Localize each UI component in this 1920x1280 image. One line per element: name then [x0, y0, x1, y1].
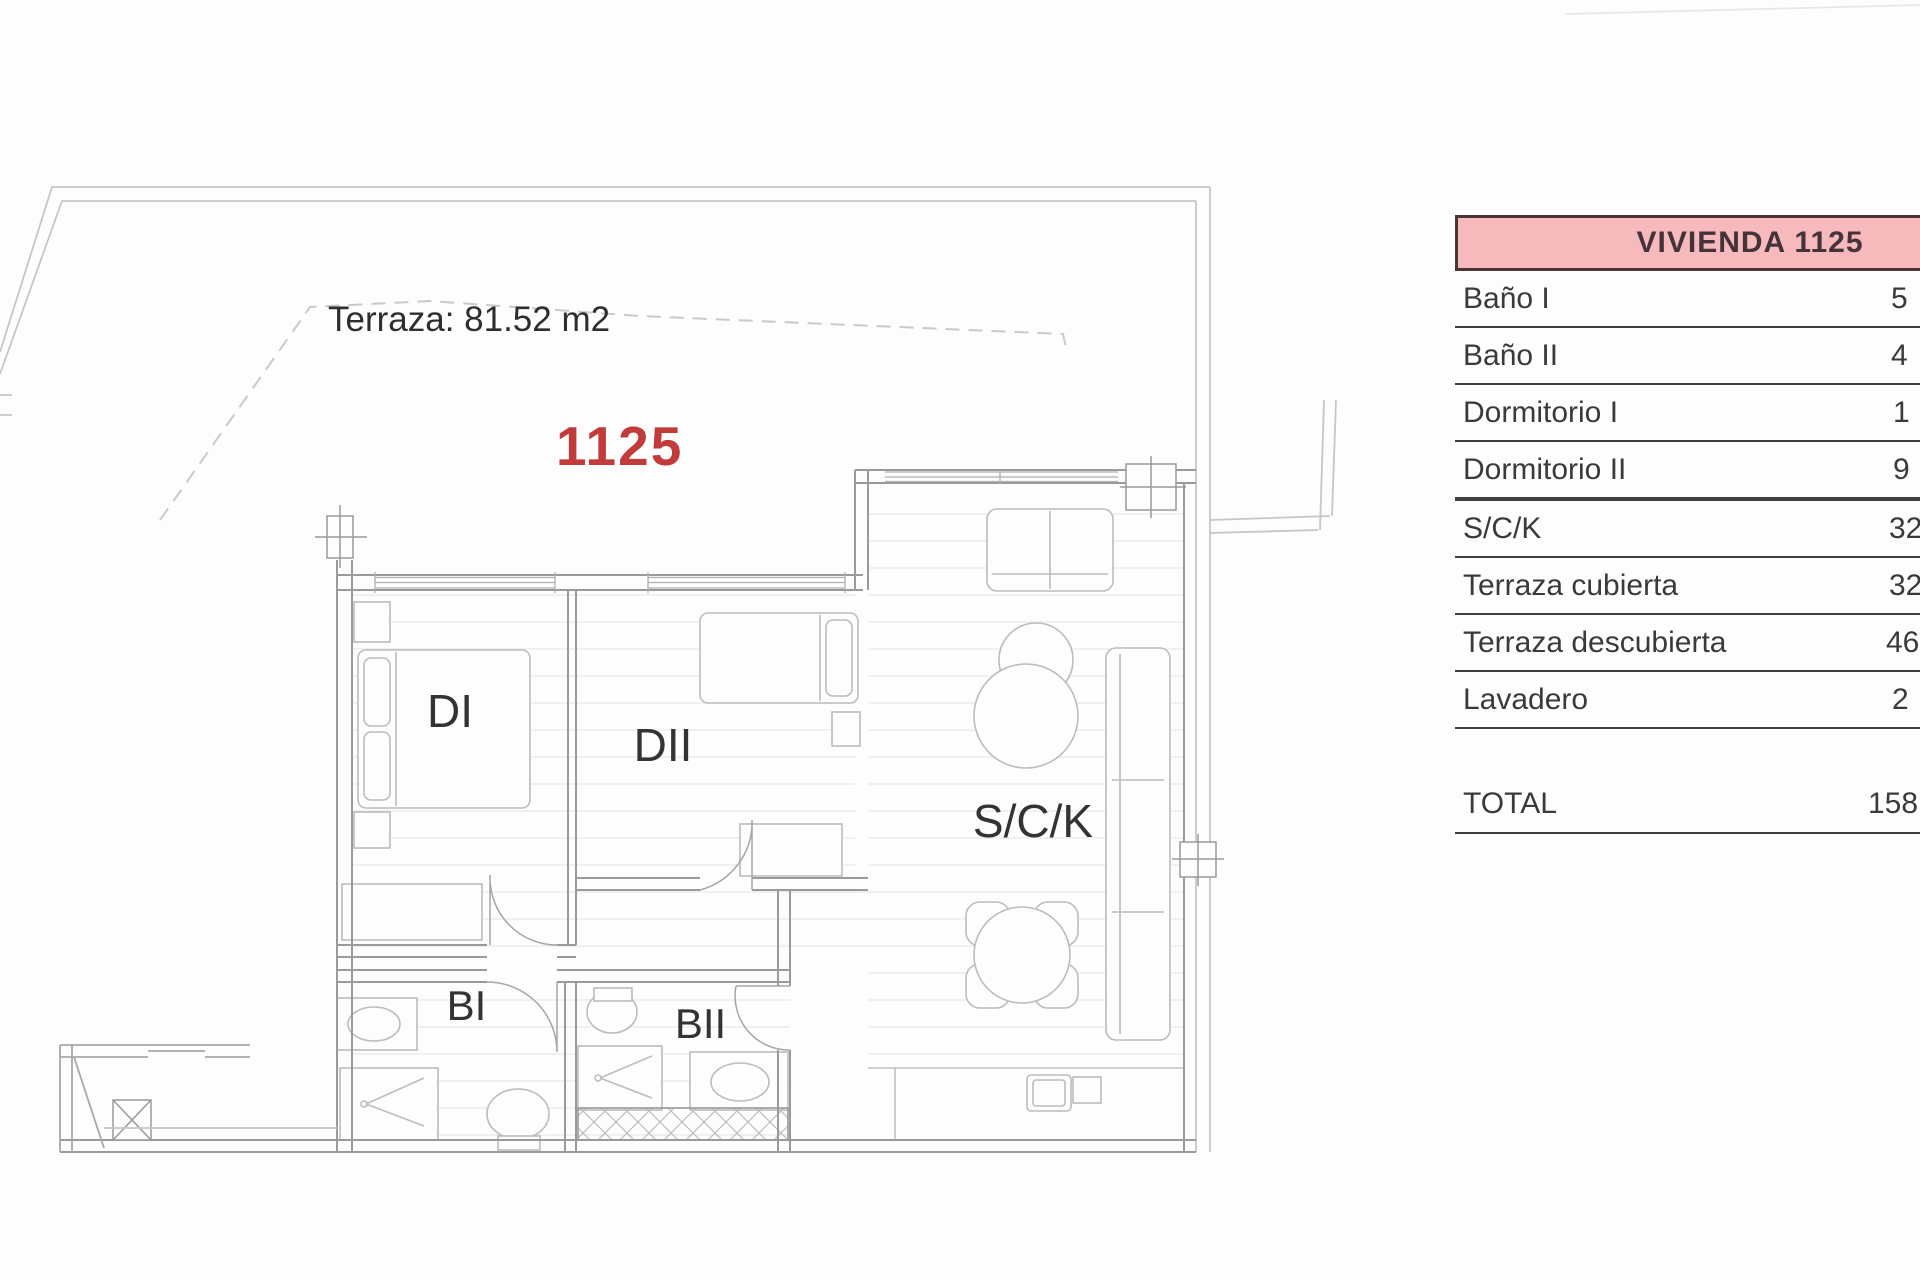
table-row: Dormitorio I 1 [1455, 385, 1920, 442]
row-value: 32 [1889, 501, 1920, 556]
room-label-bano2: BII [648, 1000, 753, 1048]
row-value: 1 [1893, 385, 1910, 440]
table-header: VIVIENDA 1125 [1455, 215, 1920, 271]
row-value: 46 [1886, 615, 1919, 670]
area-table: VIVIENDA 1125 Baño I 5 Baño II 4 Dormito… [1455, 215, 1920, 834]
lavadero-hatch [578, 1108, 788, 1140]
row-label: S/C/K [1463, 501, 1541, 556]
table-row: S/C/K 32 [1455, 501, 1920, 558]
row-label: Dormitorio I [1463, 385, 1618, 440]
room-label-bano1: BI [424, 982, 509, 1030]
hob [1073, 1077, 1101, 1103]
room-label-dormitorio1: DI [405, 684, 495, 738]
shower-bii [578, 1046, 662, 1110]
toilet-bi [487, 1089, 549, 1139]
table-row: Baño II 4 [1455, 328, 1920, 385]
table-row: Lavadero 2 [1455, 672, 1920, 729]
table-row: Terraza descubierta 46 [1455, 615, 1920, 672]
floorplan-page: { "plan": { "unit_number": "1125", "terr… [0, 0, 1920, 1280]
row-value: 2 [1892, 672, 1909, 727]
nightstand [354, 812, 390, 848]
row-value: 4 [1891, 328, 1908, 383]
row-value: 5 [1891, 271, 1908, 326]
room-label-dormitorio2: DII [608, 718, 718, 772]
round-table [974, 664, 1078, 768]
row-label: Terraza descubierta [1463, 615, 1726, 670]
total-value: 158 [1868, 776, 1918, 832]
row-label: Terraza cubierta [1463, 558, 1678, 613]
row-label: Baño II [1463, 328, 1558, 383]
terrace-area-label: Terraza: 81.52 m2 [328, 300, 610, 340]
pillow [364, 658, 390, 726]
table-total-row: TOTAL 158 [1455, 776, 1920, 834]
table-row: Baño I 5 [1455, 271, 1920, 328]
entry-structure [60, 1045, 337, 1152]
pillow [364, 732, 390, 800]
total-label: TOTAL [1463, 776, 1557, 832]
pillow [826, 620, 852, 696]
nightstand [354, 602, 390, 642]
unit-number-label: 1125 [556, 414, 683, 478]
table-row: Terraza cubierta 32 [1455, 558, 1920, 615]
row-value: 32 [1889, 558, 1920, 613]
row-label: Lavadero [1463, 672, 1588, 727]
dresser-di [342, 884, 482, 940]
row-value: 9 [1893, 442, 1910, 497]
room-label-salon-cocina: S/C/K [948, 794, 1118, 848]
row-label: Dormitorio II [1463, 442, 1626, 497]
dining-table [974, 907, 1070, 1003]
terrace-dashed-boundary [160, 301, 1067, 520]
row-label: Baño I [1463, 271, 1550, 326]
table-row: Dormitorio II 9 [1455, 442, 1920, 501]
dresser-dii [740, 824, 842, 876]
nightstand [832, 712, 860, 746]
